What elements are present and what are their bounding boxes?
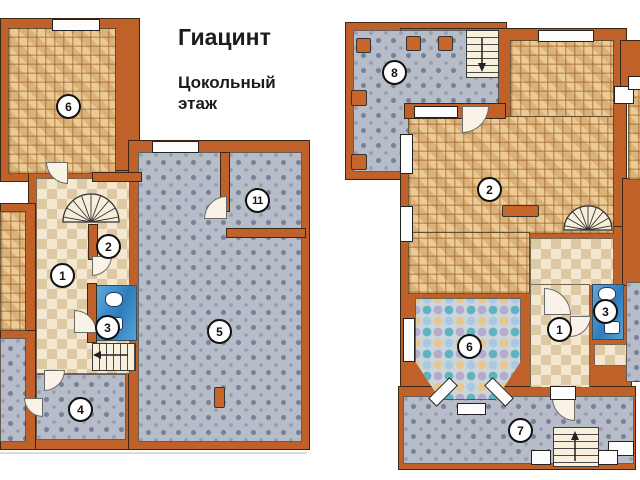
ffp-room-1-floor-upper	[530, 238, 614, 286]
ffp-door-gap-room1-porch	[550, 386, 576, 400]
ffp-window-room2-top	[538, 30, 594, 42]
plan-subtitle-line2: этаж	[178, 93, 276, 114]
ffp-wall-right-wing-mid	[622, 178, 640, 286]
bp-left-lower-room-floor	[0, 338, 26, 442]
ffp-room-label-3: 3	[593, 299, 618, 324]
bp-room-label-3: 3	[95, 315, 120, 340]
ffp-window-room2-left-2	[400, 206, 413, 242]
ffp-entry-stair-post-right	[598, 450, 618, 465]
bp-window-room5	[152, 141, 199, 153]
ffp-room8-column	[356, 38, 371, 53]
ffp-room8-column	[351, 154, 367, 170]
ffp-room8-column	[406, 36, 421, 51]
ffp-right-wing-tile-fragment	[626, 282, 640, 382]
bp-window-room6	[52, 19, 100, 31]
ffp-right-wing-window-fragment	[628, 76, 640, 90]
ffp-window-room2-left-1	[400, 134, 413, 174]
bp-left-room-floor	[0, 211, 26, 331]
bp-room-label-6: 6	[56, 94, 81, 119]
ffp-room8-column	[438, 36, 453, 51]
ffp-room8-stairs-arrow	[476, 34, 488, 74]
ffp-spiral-staircase	[560, 188, 616, 232]
plan-title: Гиацинт	[178, 24, 271, 51]
bp-room-label-1: 1	[50, 263, 75, 288]
bp-room-label-2: 2	[96, 234, 121, 259]
ffp-room-label-1: 1	[547, 317, 572, 342]
ffp-entry-stairs-arrow	[569, 429, 581, 463]
plan-subtitle: Цокольный этаж	[178, 72, 276, 114]
ffp-entry-stair-post-left	[531, 450, 551, 465]
floor-plan-canvas: Гиацинт Цокольный этаж	[0, 0, 640, 480]
ffp-room-label-8: 8	[382, 60, 407, 85]
ffp-window-room8-wall	[414, 106, 458, 118]
ffp-room-label-6: 6	[457, 334, 482, 359]
ffp-room-2-floor-upper	[510, 40, 614, 120]
ffp-room-2-floor-lower	[408, 232, 530, 294]
ffp-window-room6-left	[403, 318, 415, 362]
ffp-room2-wall-stub	[502, 205, 539, 217]
ffp-room-label-2: 2	[477, 177, 502, 202]
plan-subtitle-line1: Цокольный	[178, 72, 276, 93]
basement-plan-shadow	[0, 452, 307, 454]
bp-room5-door-post	[214, 387, 225, 408]
bp-room-label-5: 5	[207, 319, 232, 344]
bp-room-label-11: 11	[245, 188, 270, 213]
bp-wall-bathroom	[87, 283, 97, 343]
ffp-room8-column	[351, 90, 367, 106]
bp-stairs-arrow	[92, 349, 132, 361]
ffp-room-label-7: 7	[508, 418, 533, 443]
bp-wall-room11-bottom	[226, 228, 306, 238]
bp-toilet-icon	[105, 292, 123, 307]
bp-room-label-4: 4	[68, 397, 93, 422]
ffp-bay-window-center	[457, 403, 486, 415]
